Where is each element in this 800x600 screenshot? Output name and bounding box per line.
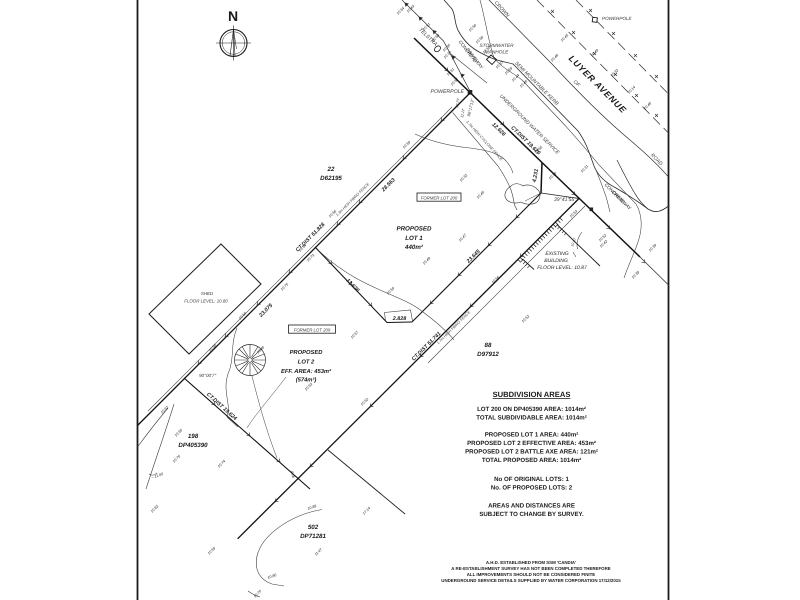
svg-text:90°00'7": 90°00'7" — [199, 373, 216, 378]
svg-text:PROPOSED LOT 2 BATTLE AXE AREA: PROPOSED LOT 2 BATTLE AXE AREA: 121m² — [465, 449, 598, 456]
svg-text:D62195: D62195 — [320, 175, 342, 182]
svg-text:N: N — [228, 8, 238, 24]
svg-text:(574m²): (574m²) — [296, 377, 317, 384]
svg-text:TOTAL SUBDIVIDABLE AREA: 1014m: TOTAL SUBDIVIDABLE AREA: 1014m² — [476, 415, 587, 422]
svg-text:FORMER LOT 200: FORMER LOT 200 — [421, 195, 458, 200]
svg-text:440m²: 440m² — [404, 244, 424, 251]
svg-text:BUILDING: BUILDING — [544, 258, 568, 264]
svg-text:POWERPOLE: POWERPOLE — [431, 89, 465, 95]
svg-text:22: 22 — [327, 166, 335, 173]
svg-text:FLOOR LEVEL: 10.80: FLOOR LEVEL: 10.80 — [184, 299, 228, 304]
svg-text:No. OF PROPOSED LOTS: 2: No. OF PROPOSED LOTS: 2 — [491, 485, 573, 492]
svg-text:PROPOSED LOT 2 EFFECTIVE AREA:: PROPOSED LOT 2 EFFECTIVE AREA: 453m² — [467, 440, 596, 447]
svg-text:LOT 200 ON DP405390 AREA: 1014: LOT 200 ON DP405390 AREA: 1014m² — [477, 406, 586, 413]
svg-text:A.H.D. ESTABLISHED FROM SSM 'C: A.H.D. ESTABLISHED FROM SSM 'CANDIA' — [486, 560, 576, 565]
svg-text:SUBDIVISION AREAS: SUBDIVISION AREAS — [493, 390, 571, 399]
svg-text:LOT 1: LOT 1 — [405, 235, 423, 242]
svg-text:SUBJECT TO CHANGE BY SURVEY.: SUBJECT TO CHANGE BY SURVEY. — [479, 511, 584, 518]
svg-text:AREAS AND DISTANCES ARE: AREAS AND DISTANCES ARE — [488, 503, 575, 510]
svg-text:ALL IMPROVEMENTS SHOULD NOT BE: ALL IMPROVEMENTS SHOULD NOT BE CONSIDERE… — [467, 572, 596, 577]
svg-text:FORMER LOT 209: FORMER LOT 209 — [294, 327, 331, 332]
svg-text:UNDERGROUND SERVICE DETAILS SU: UNDERGROUND SERVICE DETAILS SUPPLIED BY … — [441, 578, 621, 583]
svg-text:A RE-ESTABLISHMENT SURVEY HAS: A RE-ESTABLISHMENT SURVEY HAS NOT BEEN C… — [451, 566, 610, 571]
svg-text:No OF ORIGINAL LOTS: 1: No OF ORIGINAL LOTS: 1 — [494, 476, 569, 483]
svg-text:PROPOSED: PROPOSED — [290, 349, 324, 356]
svg-text:LOT 2: LOT 2 — [298, 359, 315, 366]
svg-text:SHED: SHED — [201, 291, 214, 296]
svg-text:TOTAL PROPOSED AREA: 1014m²: TOTAL PROPOSED AREA: 1014m² — [482, 457, 581, 464]
svg-text:88: 88 — [485, 342, 492, 349]
svg-text:FLOOR LEVEL: 10.87: FLOOR LEVEL: 10.87 — [537, 265, 587, 271]
svg-text:EXISTING: EXISTING — [545, 251, 568, 257]
svg-text:D97912: D97912 — [477, 351, 499, 358]
svg-text:EFF. AREA: 453m²: EFF. AREA: 453m² — [281, 368, 332, 375]
svg-text:PROPOSED LOT 1 AREA: 440m²: PROPOSED LOT 1 AREA: 440m² — [485, 432, 579, 439]
svg-text:DP71281: DP71281 — [300, 533, 326, 540]
svg-text:PROPOSED: PROPOSED — [396, 226, 432, 233]
svg-text:DP405390: DP405390 — [178, 442, 208, 449]
svg-text:POWERPOLE: POWERPOLE — [602, 16, 633, 21]
svg-text:502: 502 — [308, 524, 319, 531]
svg-text:2.828: 2.828 — [392, 316, 407, 322]
svg-text:39°41'55": 39°41'55" — [554, 197, 577, 203]
svg-text:198: 198 — [188, 433, 199, 440]
